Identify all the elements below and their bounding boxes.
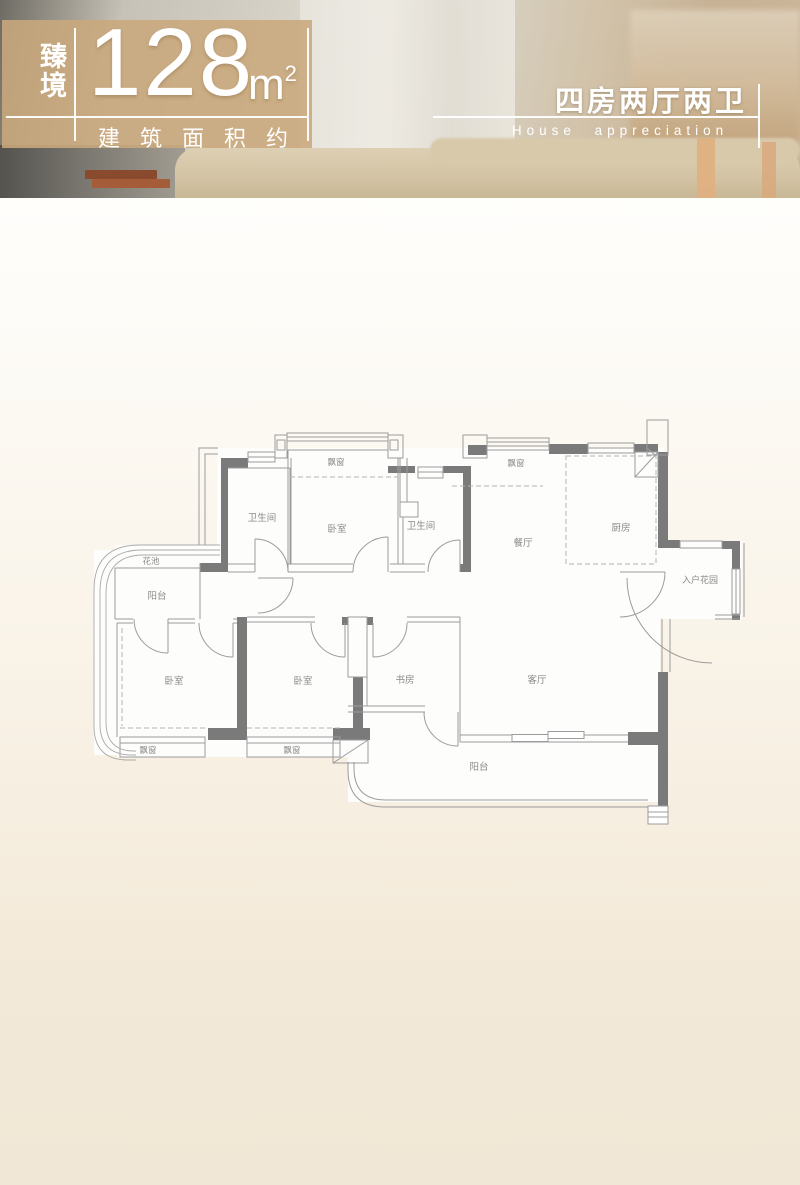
area-badge-panel: 臻境 128 m2 建筑面积约 xyxy=(2,20,312,148)
room-label-living: 客厅 xyxy=(527,674,547,686)
label-bay-window-1: 飘窗 xyxy=(327,457,344,467)
room-label-entry-garden: 入户花园 xyxy=(682,574,718,585)
room-label-dining: 餐厅 xyxy=(513,537,533,549)
photo-sofa-cushion xyxy=(430,138,800,162)
room-label-balcony-bottom: 阳台 xyxy=(469,761,488,773)
label-bay-window-4: 飘窗 xyxy=(283,745,300,755)
flyer-page: 臻境 128 m2 建筑面积约 四房两厅两卫 House appreciatio… xyxy=(0,0,800,1185)
room-label-bedroom-mid: 卧室 xyxy=(293,675,312,687)
room-label-kitchen: 厨房 xyxy=(611,522,630,534)
room-label-bathroom-2: 卫生间 xyxy=(407,520,436,532)
area-value: 128 xyxy=(88,8,254,118)
room-label-bedroom-left: 卧室 xyxy=(164,675,183,687)
divider-line xyxy=(307,28,309,141)
area-caption: 建筑面积约 xyxy=(98,121,308,153)
label-bay-window-3: 飘窗 xyxy=(139,745,156,755)
area-unit: m2 xyxy=(248,60,297,110)
unit-sup: 2 xyxy=(285,61,297,86)
layout-title: 四房两厅两卫 xyxy=(543,78,759,120)
room-label-bedroom-top: 卧室 xyxy=(327,523,346,535)
photo-books xyxy=(92,179,170,188)
unit-m: m xyxy=(248,60,285,109)
divider-line xyxy=(758,84,760,148)
photo-pillar xyxy=(697,138,715,198)
header-photo: 臻境 128 m2 建筑面积约 四房两厅两卫 House appreciatio… xyxy=(0,0,800,198)
room-label-bathroom-1: 卫生间 xyxy=(248,512,277,524)
label-bay-window-2: 飘窗 xyxy=(507,458,524,468)
photo-pillar xyxy=(762,142,776,198)
room-label-study: 书房 xyxy=(395,674,414,686)
divider-line xyxy=(6,116,307,118)
photo-books xyxy=(85,170,157,179)
project-name-vertical: 臻境 xyxy=(32,42,66,100)
room-label-flower-bed: 花池 xyxy=(142,556,160,566)
divider-line xyxy=(74,28,76,141)
plan-floor-fill xyxy=(94,448,742,802)
layout-subtitle: House appreciation xyxy=(470,123,770,138)
photo-city-view xyxy=(630,10,800,140)
room-label-balcony-left: 阳台 xyxy=(147,590,166,602)
floor-plan: 卫生间 卧室 卫生间 餐厅 厨房 入户花园 花池 阳台 卧室 卧室 书房 客厅 … xyxy=(80,410,750,840)
divider-line xyxy=(433,116,759,118)
